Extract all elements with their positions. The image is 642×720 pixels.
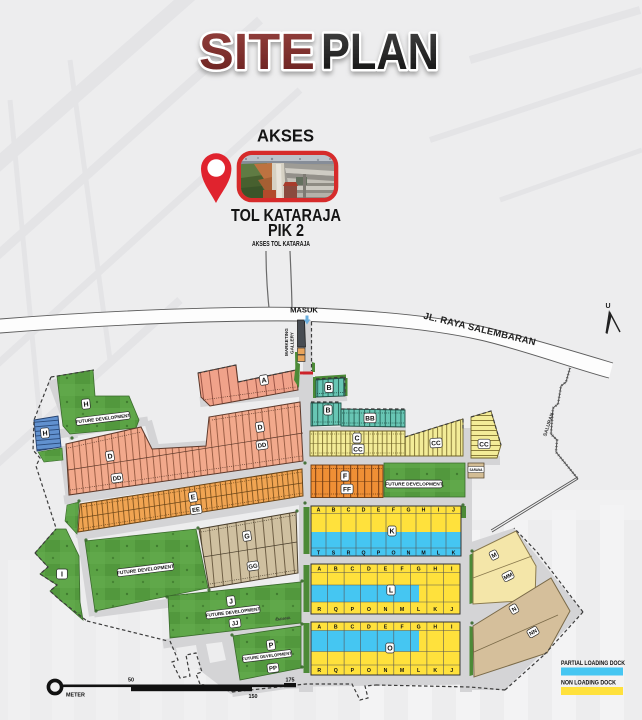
svg-text:D: D [257, 424, 263, 432]
svg-text:Q: Q [334, 607, 338, 613]
svg-text:MASUK: MASUK [290, 306, 318, 315]
svg-text:K: K [452, 551, 456, 557]
svg-text:DD: DD [112, 476, 122, 483]
svg-text:N: N [384, 607, 388, 613]
svg-text:C: C [351, 567, 355, 573]
svg-text:METER: METER [66, 693, 85, 699]
svg-text:O: O [367, 607, 371, 613]
svg-text:F: F [392, 508, 395, 514]
svg-text:B: B [334, 625, 338, 631]
svg-text:GALLERY: GALLERY [290, 332, 295, 354]
svg-text:SARANA: SARANA [470, 468, 483, 472]
svg-text:N: N [407, 551, 411, 557]
svg-text:EE: EE [192, 507, 201, 514]
svg-text:H: H [42, 430, 48, 437]
svg-text:C: C [351, 625, 355, 631]
svg-text:K: K [433, 668, 437, 674]
svg-text:E: E [377, 508, 381, 514]
svg-text:D: D [362, 508, 366, 514]
svg-text:CC: CC [431, 440, 441, 447]
svg-text:R: R [317, 607, 321, 613]
svg-text:NON LOADING DOCK: NON LOADING DOCK [561, 680, 616, 687]
svg-text:H: H [83, 401, 89, 408]
svg-text:Q: Q [334, 668, 338, 674]
svg-text:P: P [351, 668, 355, 674]
svg-text:H: H [422, 508, 426, 514]
svg-text:50: 50 [128, 678, 134, 684]
svg-text:I: I [61, 572, 63, 579]
svg-text:R: R [347, 551, 351, 557]
svg-text:A: A [317, 567, 321, 573]
svg-text:FF: FF [343, 486, 351, 493]
svg-text:CC: CC [479, 441, 489, 448]
svg-text:Q: Q [361, 551, 365, 557]
svg-text:U: U [605, 303, 610, 310]
svg-text:G: G [417, 567, 421, 573]
svg-text:175: 175 [286, 678, 295, 684]
svg-text:A: A [261, 377, 267, 385]
svg-text:O: O [387, 646, 393, 653]
svg-text:S: S [332, 551, 336, 557]
svg-text:B: B [334, 567, 338, 573]
svg-text:K: K [433, 607, 437, 613]
svg-text:F: F [401, 567, 404, 573]
svg-text:M: M [421, 551, 425, 557]
svg-text:JJ: JJ [231, 621, 238, 628]
svg-text:J: J [450, 607, 453, 613]
svg-text:D: D [367, 625, 371, 631]
svg-text:B: B [332, 508, 336, 514]
svg-text:P: P [351, 607, 355, 613]
svg-text:O: O [391, 551, 395, 557]
svg-text:D: D [367, 567, 371, 573]
svg-text:K: K [389, 529, 394, 536]
svg-text:SITE: SITE [199, 23, 315, 80]
svg-text:D: D [107, 453, 113, 461]
svg-text:E: E [384, 625, 388, 631]
svg-text:A: A [317, 625, 321, 631]
svg-text:PARTIAL LOADING DOCK: PARTIAL LOADING DOCK [561, 660, 625, 667]
svg-text:G: G [417, 625, 421, 631]
svg-text:BB: BB [365, 415, 375, 422]
svg-text:AKSES: AKSES [257, 126, 314, 146]
svg-text:MARKETING: MARKETING [284, 328, 289, 356]
svg-text:PLAN: PLAN [321, 23, 439, 80]
svg-text:A: A [317, 508, 321, 514]
svg-text:M: M [400, 668, 404, 674]
svg-text:CC: CC [353, 446, 363, 453]
svg-text:L: L [389, 588, 394, 595]
svg-text:E: E [384, 567, 388, 573]
svg-text:H: H [433, 567, 437, 573]
svg-text:N: N [384, 668, 388, 674]
svg-text:B: B [326, 385, 331, 392]
svg-text:B: B [325, 408, 330, 415]
svg-text:J: J [450, 668, 453, 674]
svg-text:H: H [433, 625, 437, 631]
svg-text:AKSES TOL KATARAJA: AKSES TOL KATARAJA [252, 239, 310, 248]
svg-text:P: P [377, 551, 381, 557]
svg-text:M: M [400, 607, 404, 613]
svg-text:DD: DD [257, 443, 267, 450]
svg-text:R: R [317, 668, 321, 674]
svg-text:150: 150 [249, 694, 258, 700]
svg-text:FUTURE DEVELOPMENT: FUTURE DEVELOPMENT [385, 482, 442, 488]
svg-text:F: F [401, 625, 404, 631]
svg-text:F: F [343, 474, 348, 481]
svg-text:PIK 2: PIK 2 [268, 220, 304, 240]
svg-text:J: J [452, 508, 455, 514]
svg-text:PP: PP [269, 666, 278, 673]
svg-text:C: C [347, 508, 351, 514]
svg-text:C: C [354, 436, 359, 443]
svg-text:G: G [406, 508, 410, 514]
svg-text:O: O [367, 668, 371, 674]
